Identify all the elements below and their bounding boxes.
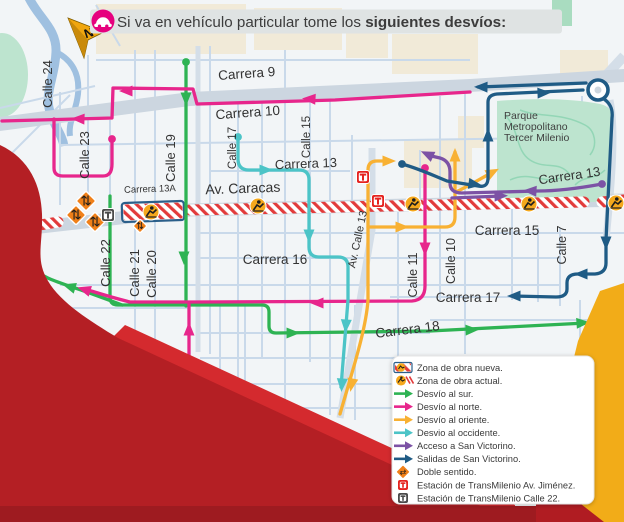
transmilenio-station-dark-icon xyxy=(102,209,115,222)
page-title: Si va en vehículo particular tome los si… xyxy=(117,14,506,31)
obra-worker-icon xyxy=(405,196,421,212)
street-label-carrera-13: Carrera 13 xyxy=(275,155,338,172)
tm-dark-icon xyxy=(398,493,408,503)
route-start-dot xyxy=(598,180,606,188)
obra-worker-icon xyxy=(608,195,624,211)
obra-worker-icon xyxy=(521,196,537,212)
legend-label: Desvío al oriente. xyxy=(417,415,489,425)
obra-nueva-icon xyxy=(394,363,412,373)
svg-text:⇅: ⇅ xyxy=(89,214,100,229)
legend-item-estacion-de-transmilenio-calle-22: Estación de TransMilenio Calle 22. xyxy=(398,493,560,503)
red-bottom-band xyxy=(0,506,592,522)
legend-label: Estación de TransMilenio Calle 22. xyxy=(417,493,560,503)
obra-worker-icon xyxy=(143,204,159,220)
svg-text:⇅: ⇅ xyxy=(70,207,81,222)
street-label-carrera-13a: Carrera 13A xyxy=(124,183,177,196)
street-label-calle-20: Calle 20 xyxy=(144,250,159,298)
street-label-calle-23: Calle 23 xyxy=(77,131,92,179)
street-label-carrera-17: Carrera 17 xyxy=(436,290,501,305)
route-start-dot xyxy=(398,160,406,168)
title-regular: Si va en vehículo particular tome los xyxy=(117,14,365,31)
route-start-dot xyxy=(108,135,116,143)
legend-label: Zona de obra actual. xyxy=(417,376,502,386)
street-label-av-caracas: Av. Caracas xyxy=(205,179,280,198)
street-label-calle-17: Calle 17 xyxy=(227,127,239,169)
title-bold: siguientes desvíos: xyxy=(365,14,506,31)
street-label-calle-15: Calle 15 xyxy=(301,116,313,158)
legend-item-zona-de-obra-nueva: Zona de obra nueva. xyxy=(394,363,503,373)
street-label-carrera-15: Carrera 15 xyxy=(475,223,540,238)
traffic-detour-map: ⇅⇅⇅⇅ Carrera 9Carrera 10Calle 24Calle 23… xyxy=(0,0,624,522)
park-label-line3: Tercer Milenio xyxy=(504,132,570,144)
legend-label: Acceso a San Victorino. xyxy=(417,441,516,451)
route-start-dot xyxy=(182,58,190,66)
map-canvas: ⇅⇅⇅⇅ Carrera 9Carrera 10Calle 24Calle 23… xyxy=(0,0,624,522)
transmilenio-station-red-icon xyxy=(372,195,385,208)
street-label-calle-22: Calle 22 xyxy=(98,239,113,287)
street-label-calle-11: Calle 11 xyxy=(406,252,420,297)
street-label-calle-7: Calle 7 xyxy=(555,226,569,265)
legend-card: Zona de obra nueva.Zona de obra actual.D… xyxy=(392,356,594,504)
legend-label: Desvio al occidente. xyxy=(417,428,500,438)
street-label-calle-24: Calle 24 xyxy=(40,60,55,108)
legend-item-estacion-de-transmilenio-av-jimenez: Estación de TransMilenio Av. Jiménez. xyxy=(398,480,575,490)
legend-label: Desvío al sur. xyxy=(417,389,473,399)
legend-label: Salidas de San Victorino. xyxy=(417,454,521,464)
street-label-carrera-16: Carrera 16 xyxy=(243,252,308,267)
svg-text:⇄: ⇄ xyxy=(400,468,407,477)
legend-label: Desvío al norte. xyxy=(417,402,482,412)
legend-label: Zona de obra nueva. xyxy=(417,363,503,373)
title-bar: Si va en vehículo particular tome los si… xyxy=(90,10,562,34)
svg-text:⇅: ⇅ xyxy=(136,221,144,232)
svg-text:⇅: ⇅ xyxy=(80,193,91,208)
street-label-calle-10: Calle 10 xyxy=(444,238,458,284)
car-icon xyxy=(92,10,115,33)
street-label-calle-21: Calle 21 xyxy=(127,249,142,297)
legend-item-desvio-al-sur: Desvío al sur. xyxy=(394,389,473,399)
street-label-calle-19: Calle 19 xyxy=(163,134,178,182)
transmilenio-station-red-icon xyxy=(357,171,370,184)
obra-worker-icon xyxy=(250,198,266,214)
tm-red-icon xyxy=(398,480,408,490)
legend-label: Estación de TransMilenio Av. Jiménez. xyxy=(417,480,575,490)
legend-label: Doble sentido. xyxy=(417,467,476,477)
